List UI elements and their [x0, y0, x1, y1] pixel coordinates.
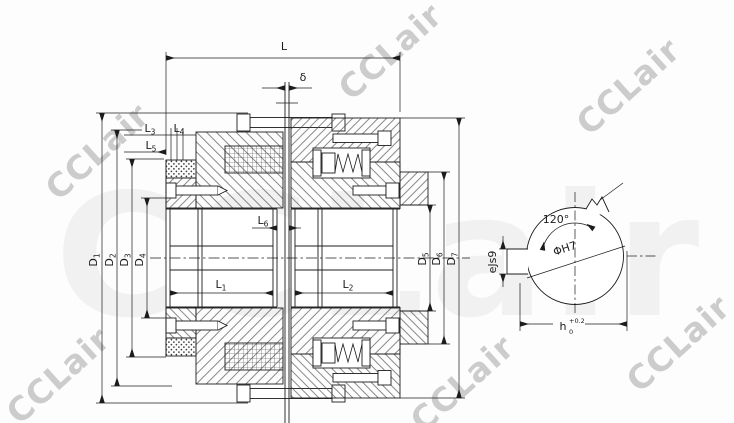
label-L5: L5 — [146, 139, 157, 154]
label-key-width-eJs9: eJs9 — [486, 251, 499, 274]
label-key-height-lower-tol: 0 — [569, 328, 573, 336]
dimension-delta: δ — [262, 71, 312, 103]
label-key-height-upper-tol: +0.2 — [569, 317, 585, 325]
elastic-element-block — [225, 146, 283, 173]
watermark-top-center: CCLair — [331, 0, 450, 108]
label-key-height-h: h — [560, 320, 567, 333]
label-L4: L4 — [174, 122, 185, 137]
coupling-bottom-half — [166, 258, 428, 423]
label-delta: δ — [300, 71, 307, 84]
seal-packing-block — [166, 160, 196, 178]
technical-drawing-canvas: CCLair CCLair CCLair CCLair CCLair CCLai… — [0, 0, 734, 423]
spring-pack — [313, 148, 370, 178]
right-bore-cavity — [291, 209, 400, 258]
keyway-slot — [504, 249, 528, 275]
coupling-drawing-page: CCLair CCLair CCLair CCLair CCLair CCLai… — [0, 0, 734, 423]
right-collar-step — [400, 172, 428, 205]
label-angle-120: 120° — [543, 213, 570, 226]
coupling-top-half — [166, 82, 428, 258]
watermark-top-right: CCLair — [569, 30, 688, 143]
label-L: L — [281, 40, 288, 53]
